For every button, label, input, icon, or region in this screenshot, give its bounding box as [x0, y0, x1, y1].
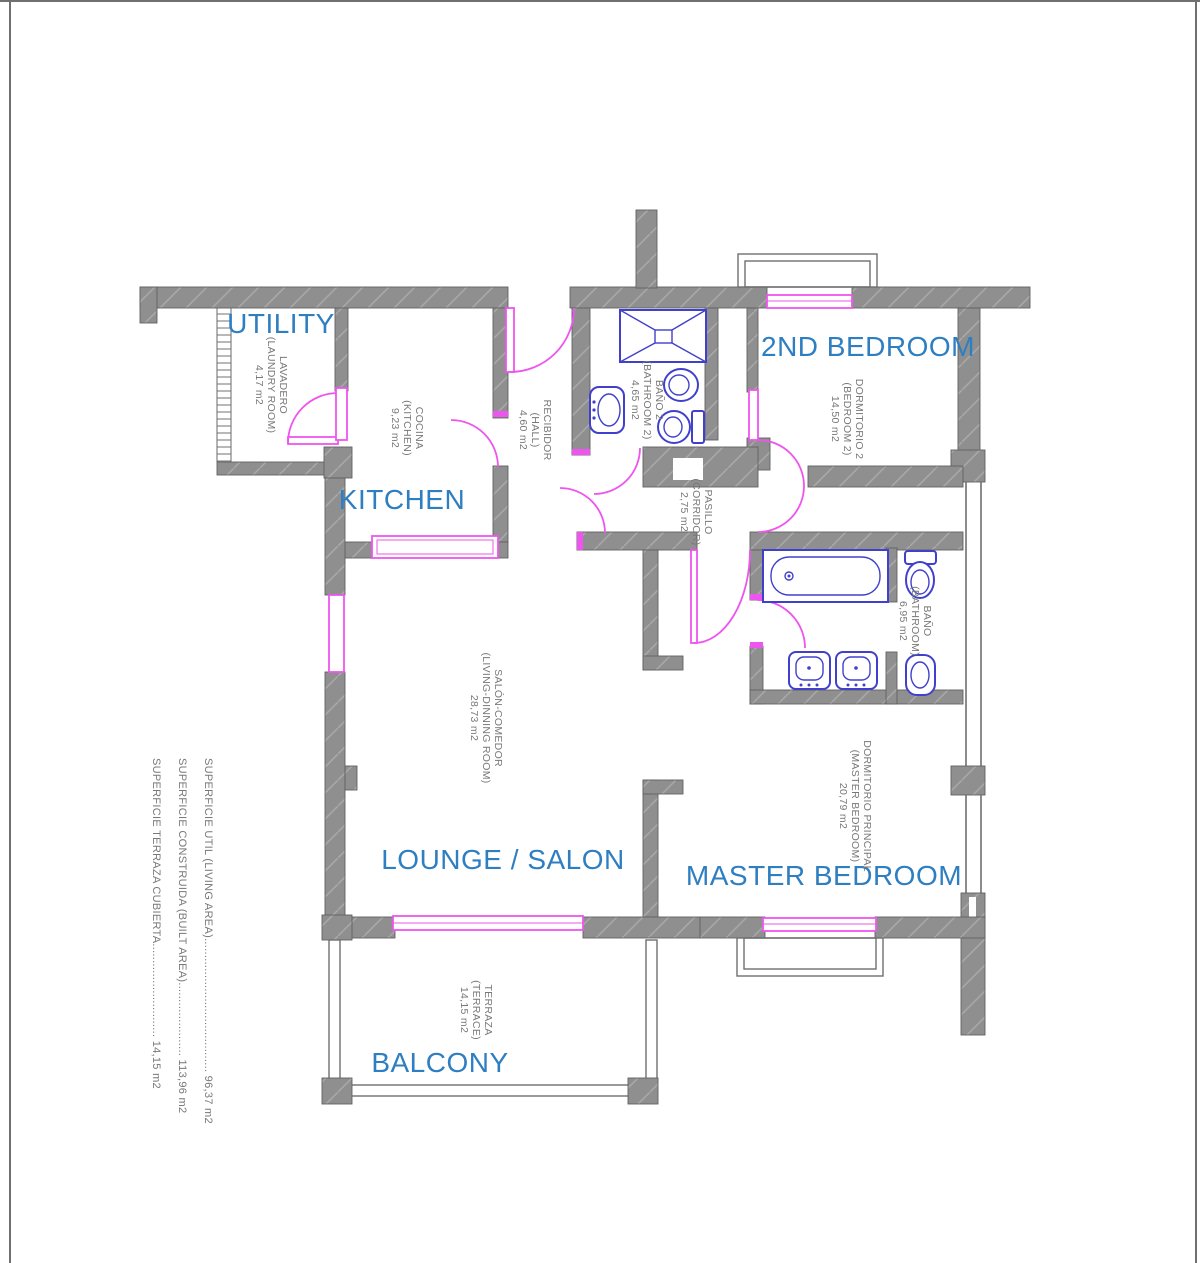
- summary-line-living-area: SUPERFICIE UTIL (LIVING AREA)...........…: [202, 758, 214, 1124]
- wall-pillar: [322, 1078, 352, 1104]
- wall-segment: [217, 462, 329, 475]
- wall-segment: [643, 656, 683, 670]
- wall-segment: [335, 308, 348, 391]
- svg-text:4,17 m2: 4,17 m2: [253, 365, 265, 405]
- annotation-2nd-bedroom: DORMITORIO 2 (BEDROOM 2) 14,50 m2: [829, 379, 865, 459]
- bay-window-2nd-bedroom: [738, 254, 877, 287]
- master-door-leaf: [691, 550, 697, 643]
- bathtub: [763, 550, 888, 602]
- window-lounge-left: [329, 595, 344, 672]
- bath2-door-jamb: [572, 449, 590, 455]
- svg-text:SUPERFICIE TERRAZA CUBIERTA...: SUPERFICIE TERRAZA CUBIERTA.............…: [150, 758, 162, 1089]
- annotation-master-bedroom: DORMITORIO PRINCIPAL (MASTER BEDROOM) 20…: [837, 740, 873, 872]
- svg-text:20,79 m2: 20,79 m2: [837, 783, 849, 829]
- wall-segment: [572, 308, 590, 455]
- svg-text:14,15 m2: 14,15 m2: [458, 987, 470, 1033]
- svg-text:DORMITORIO PRINCIPAL: DORMITORIO PRINCIPAL: [861, 740, 873, 872]
- svg-text:SUPERFICIE CONSTRUIDA (BUILT A: SUPERFICIE CONSTRUIDA (BUILT AREA)......…: [176, 758, 188, 1113]
- area-summary: SUPERFICIE UTIL (LIVING AREA)...........…: [150, 758, 214, 1124]
- window-kitchen-hatch: [372, 536, 498, 558]
- svg-text:(LAUNDRY ROOM): (LAUNDRY ROOM): [265, 337, 277, 434]
- bay-window-master: [737, 938, 883, 976]
- svg-text:(HALL): (HALL): [529, 412, 541, 447]
- wall-segment: [643, 780, 683, 794]
- wall-niche: [673, 458, 703, 480]
- utility-door-arc: [288, 393, 338, 443]
- balcony-parapet: [646, 940, 657, 1080]
- svg-text:(TERRACE): (TERRACE): [470, 980, 482, 1040]
- wall-segment: [583, 917, 700, 938]
- room-label-kitchen: KITCHEN: [339, 484, 465, 515]
- master-door-arc: [694, 550, 750, 643]
- wall-pillar: [951, 766, 985, 795]
- wall-segment: [570, 287, 767, 308]
- svg-text:SUPERFICIE UTIL (LIVING AREA).: SUPERFICIE UTIL (LIVING AREA)...........…: [202, 758, 214, 1124]
- sink-bath2: [590, 387, 624, 433]
- wall-segment: [140, 287, 157, 323]
- wall-segment: [577, 532, 697, 550]
- summary-line-terrace-area: SUPERFICIE TERRAZA CUBIERTA.............…: [150, 758, 162, 1089]
- svg-text:BAÑO 2: BAÑO 2: [653, 380, 666, 420]
- svg-text:28,73 m2: 28,73 m2: [468, 695, 480, 741]
- wall-segment: [958, 308, 980, 452]
- kitchen-door-arc: [451, 420, 498, 467]
- annotation-kitchen: COCINA (KITCHEN) 9,23 m2: [389, 400, 425, 456]
- annotation-bathroom: BAÑO (BATHROOM) 6,95 m2: [897, 586, 934, 656]
- annotation-balcony: TERRAZA (TERRACE) 14,15 m2: [458, 980, 494, 1040]
- svg-text:DORMITORIO 2: DORMITORIO 2: [853, 379, 865, 459]
- wall-segment: [493, 466, 508, 542]
- wall-pillar: [324, 447, 352, 478]
- wall-segment: [343, 542, 373, 558]
- wall-segment: [750, 532, 963, 550]
- svg-text:14,50 m2: 14,50 m2: [829, 396, 841, 442]
- wall-segment: [643, 550, 658, 670]
- annotation-lounge: SALÓN-COMEDOR (LIVING-DINNING ROOM) 28,7…: [468, 652, 505, 783]
- wall-pillar: [345, 766, 357, 790]
- corridor-jamb: [577, 532, 583, 550]
- wall-chimney: [636, 210, 657, 288]
- bidet-master: [906, 655, 935, 695]
- bathroom-door-jamb: [750, 594, 763, 600]
- wall-pillar: [322, 915, 352, 940]
- svg-text:6,95 m2: 6,95 m2: [897, 601, 909, 641]
- svg-text:(BATHROOM): (BATHROOM): [909, 586, 921, 656]
- wall-segment: [886, 652, 897, 704]
- wall-pillar: [628, 1078, 658, 1104]
- svg-text:(CORRIDOR): (CORRIDOR): [690, 478, 702, 545]
- 2nd-bedroom-door-frame: [749, 390, 758, 440]
- svg-text:4,60 m2: 4,60 m2: [517, 410, 529, 450]
- svg-text:LAVADERO: LAVADERO: [277, 356, 289, 414]
- kitchen-door-jamb: [493, 411, 508, 417]
- shower-tray: [620, 310, 706, 362]
- wall-segment: [747, 308, 758, 392]
- svg-text:9,23 m2: 9,23 m2: [389, 408, 401, 448]
- balcony-parapet: [329, 940, 340, 1080]
- double-sink: [789, 652, 877, 689]
- bathroom-door-arc: [757, 600, 805, 648]
- toilet-bath2: [664, 369, 698, 401]
- wall-segment: [750, 550, 763, 600]
- annotation-hall: RECIBIDOR (HALL) 4,60 m2: [517, 399, 553, 460]
- room-label-balcony: BALCONY: [371, 1047, 508, 1078]
- svg-text:PASILLO: PASILLO: [702, 489, 714, 534]
- wall-segment: [875, 917, 985, 938]
- entrance-door-arc: [510, 308, 574, 372]
- svg-text:2,75 m2: 2,75 m2: [678, 492, 690, 532]
- annotation-utility: LAVADERO (LAUNDRY ROOM) 4,17 m2: [253, 337, 289, 434]
- summary-line-built-area: SUPERFICIE CONSTRUIDA (BUILT AREA)......…: [176, 758, 188, 1113]
- svg-text:TERRAZA: TERRAZA: [482, 984, 494, 1035]
- room-label-utility: UTILITY: [227, 308, 335, 339]
- wall-segment: [643, 780, 658, 917]
- svg-text:(KITCHEN): (KITCHEN): [401, 400, 413, 456]
- entrance-door-leaf: [506, 308, 514, 372]
- balcony-parapet: [329, 1085, 657, 1096]
- wall-segment: [325, 672, 345, 917]
- svg-text:COCINA: COCINA: [413, 407, 425, 450]
- svg-text:(LIVING-DINNING ROOM): (LIVING-DINNING ROOM): [480, 652, 492, 783]
- bath2-door-arc: [594, 448, 640, 494]
- utility-door-leaf: [288, 437, 338, 444]
- wall-segment: [140, 287, 508, 308]
- svg-text:4,65 m2: 4,65 m2: [629, 380, 641, 420]
- wall-segment: [808, 466, 963, 487]
- svg-text:(BATHROOM 2): (BATHROOM 2): [641, 360, 653, 439]
- svg-text:RECIBIDOR: RECIBIDOR: [541, 399, 553, 460]
- svg-text:(MASTER BEDROOM): (MASTER BEDROOM): [849, 750, 861, 863]
- bay-window-2nd-bedroom-inner: [745, 261, 870, 287]
- wall-segment: [852, 287, 1030, 308]
- floor-plan-canvas: UTILITY KITCHEN 2ND BEDROOM LOUNGE / SAL…: [0, 0, 1200, 1263]
- bathroom-door-jamb: [750, 642, 763, 648]
- corridor-door-arc: [560, 488, 605, 533]
- room-label-master-bedroom: MASTER BEDROOM: [686, 860, 962, 891]
- utility-kitchen-door-frame: [336, 388, 347, 440]
- wall-segment: [700, 917, 765, 938]
- room-label-2nd-bedroom: 2ND BEDROOM: [761, 331, 975, 362]
- svg-text:SALÓN-COMEDOR: SALÓN-COMEDOR: [492, 669, 505, 767]
- room-label-lounge: LOUNGE / SALON: [381, 844, 625, 875]
- svg-text:(BEDROOM 2): (BEDROOM 2): [841, 382, 853, 455]
- svg-text:BAÑO: BAÑO: [921, 606, 934, 637]
- bay-window-master-inner: [744, 938, 876, 969]
